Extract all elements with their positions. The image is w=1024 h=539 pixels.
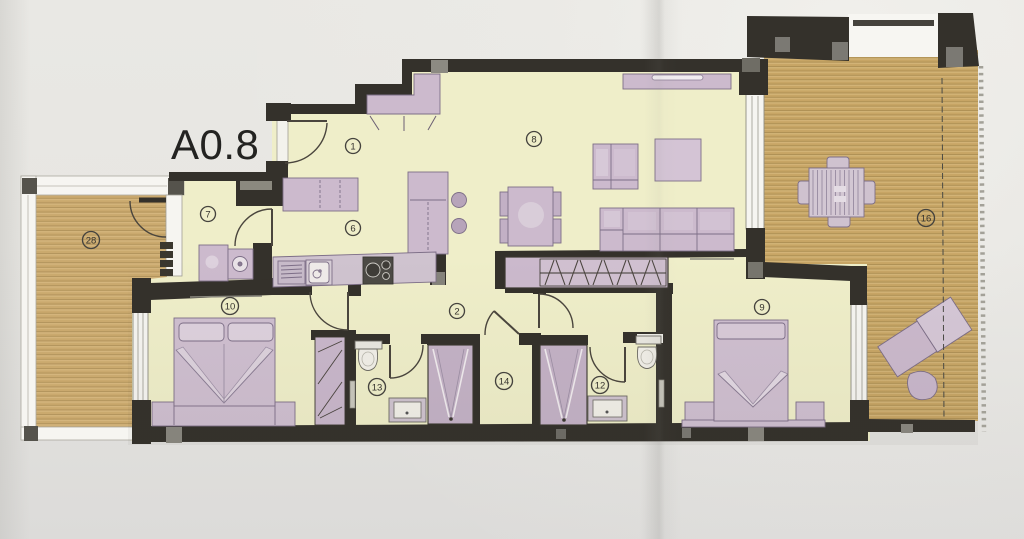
svg-text:A0.8: A0.8 bbox=[171, 121, 259, 168]
svg-text:16: 16 bbox=[921, 214, 932, 225]
svg-text:1: 1 bbox=[350, 142, 355, 153]
svg-text:6: 6 bbox=[350, 224, 355, 235]
svg-text:28: 28 bbox=[86, 236, 97, 247]
svg-text:7: 7 bbox=[205, 210, 210, 221]
svg-text:8: 8 bbox=[531, 135, 536, 146]
